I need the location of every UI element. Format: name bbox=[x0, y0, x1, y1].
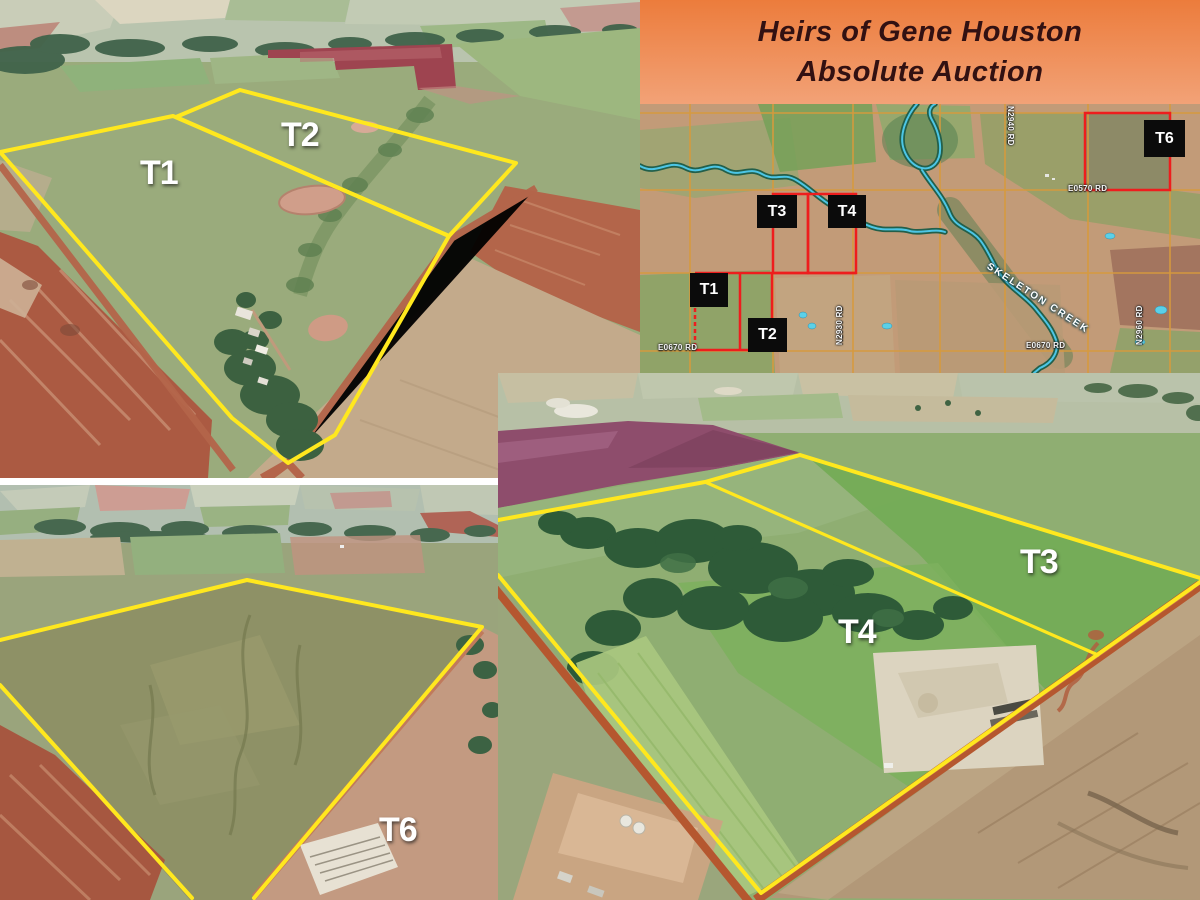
aerial-photo-tracts-3-4: T4 T3 bbox=[498, 373, 1200, 900]
tract-label-t1: T1 bbox=[140, 156, 178, 190]
map-art bbox=[640, 104, 1200, 373]
tract-label-t6: T6 bbox=[379, 813, 417, 847]
road-label-e0570: E0570 RD bbox=[1068, 185, 1107, 193]
tract-label-t4: T4 bbox=[838, 615, 876, 649]
road-label-n2940: N2940 RD bbox=[1006, 106, 1014, 146]
header-title-line2: Absolute Auction bbox=[797, 52, 1044, 92]
header-title-line1: Heirs of Gene Houston bbox=[758, 12, 1083, 52]
map-parcel-label-t4: T4 bbox=[828, 195, 866, 228]
location-map: T1 T2 T3 T4 T6 E0670 RD E0670 RD E0570 R… bbox=[640, 104, 1200, 373]
map-parcel-label-t3: T3 bbox=[757, 195, 797, 228]
map-parcel-label-t2: T2 bbox=[748, 318, 787, 352]
aerial-photo-tract-6: T6 bbox=[0, 485, 498, 900]
road-label-e0670-east: E0670 RD bbox=[1026, 342, 1065, 350]
aerial-art-bl bbox=[0, 485, 498, 900]
road-label-n2960: N2960 RD bbox=[1136, 305, 1144, 345]
map-parcel-label-t1: T1 bbox=[690, 273, 728, 307]
auction-flyer: T1 T2 Heirs of Gene Houston Absolute Auc… bbox=[0, 0, 1200, 900]
road-label-e0670-west: E0670 RD bbox=[658, 344, 697, 352]
header-banner: Heirs of Gene Houston Absolute Auction bbox=[640, 0, 1200, 104]
tract-label-t2: T2 bbox=[281, 118, 319, 152]
tract-label-t3: T3 bbox=[1020, 545, 1058, 579]
road-label-n2930: N2930 RD bbox=[836, 305, 844, 345]
map-parcel-label-t6: T6 bbox=[1144, 120, 1185, 157]
